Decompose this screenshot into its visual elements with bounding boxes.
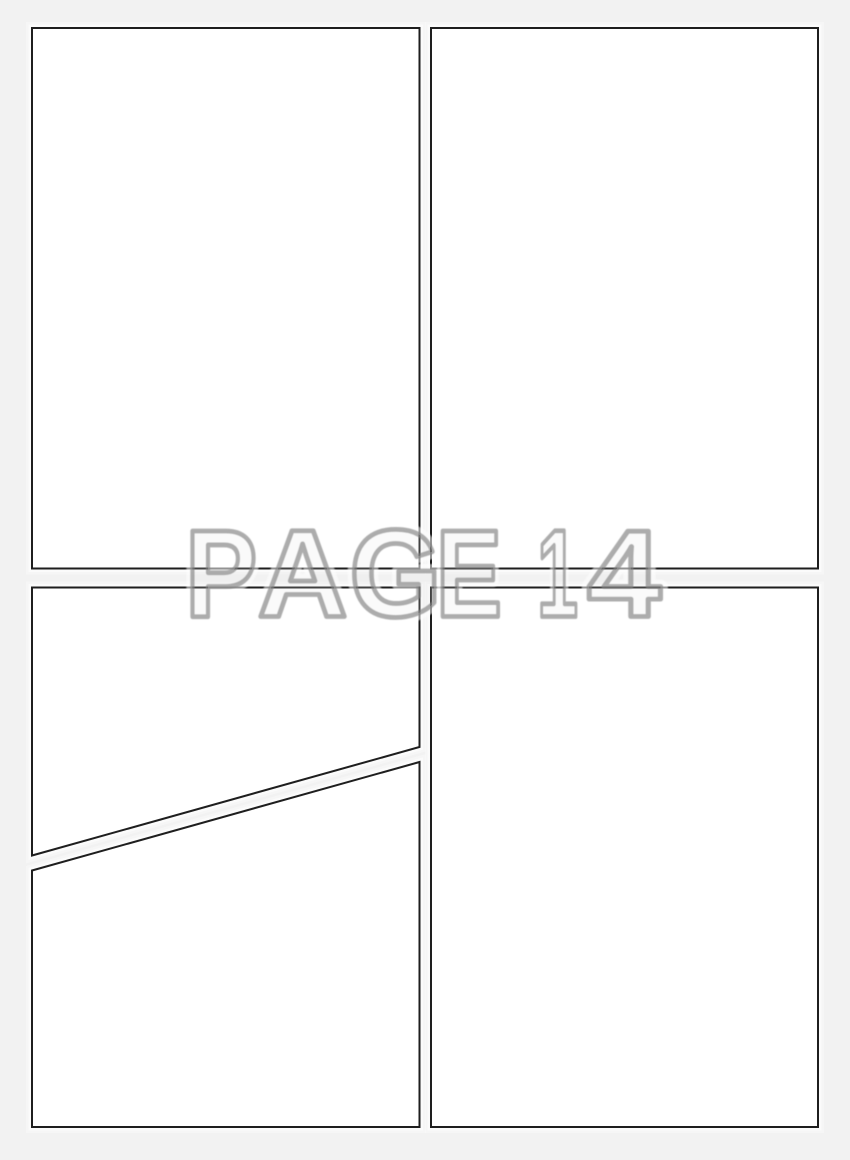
svg-text:PAGE14: PAGE14 [185, 506, 661, 644]
